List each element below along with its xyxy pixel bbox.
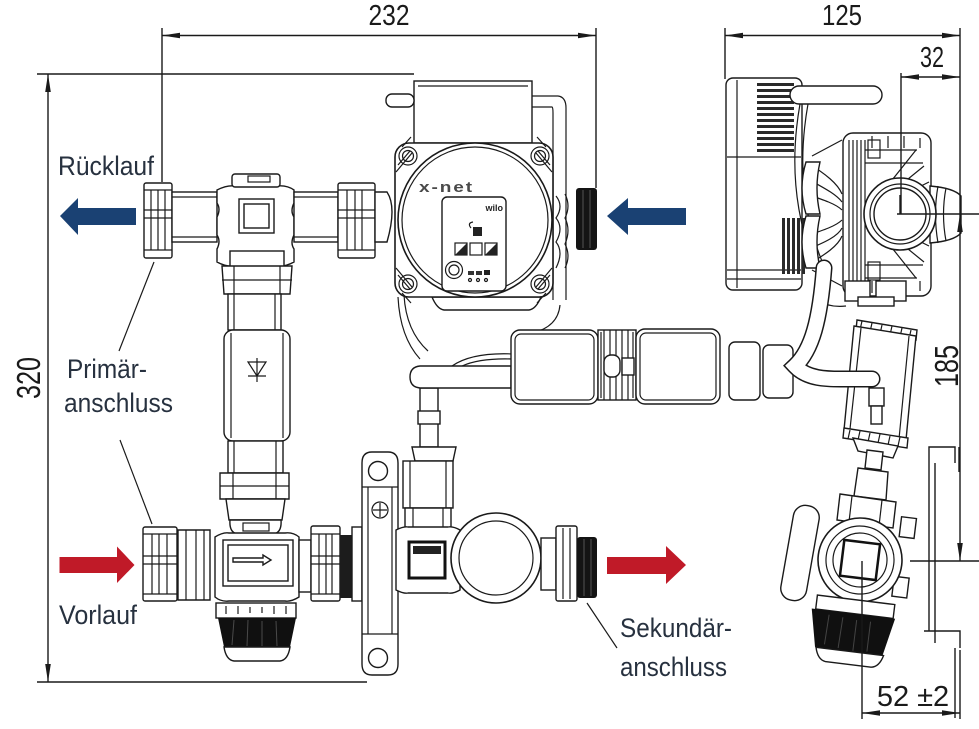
svg-text:Rücklauf: Rücklauf <box>58 151 154 181</box>
svg-text:232: 232 <box>369 0 410 32</box>
svg-text:x-net: x-net <box>419 179 474 196</box>
svg-text:Primär-: Primär- <box>67 354 147 384</box>
svg-text:320: 320 <box>10 357 47 399</box>
svg-text:52 ±2: 52 ±2 <box>877 681 949 713</box>
svg-text:anschluss: anschluss <box>64 388 173 418</box>
svg-text:wilo: wilo <box>485 203 504 213</box>
svg-text:anschluss: anschluss <box>620 652 727 682</box>
svg-text:Sekundär-: Sekundär- <box>620 613 732 643</box>
svg-text:Vorlauf: Vorlauf <box>59 600 137 630</box>
svg-text:125: 125 <box>822 0 862 32</box>
svg-text:32: 32 <box>920 42 944 74</box>
